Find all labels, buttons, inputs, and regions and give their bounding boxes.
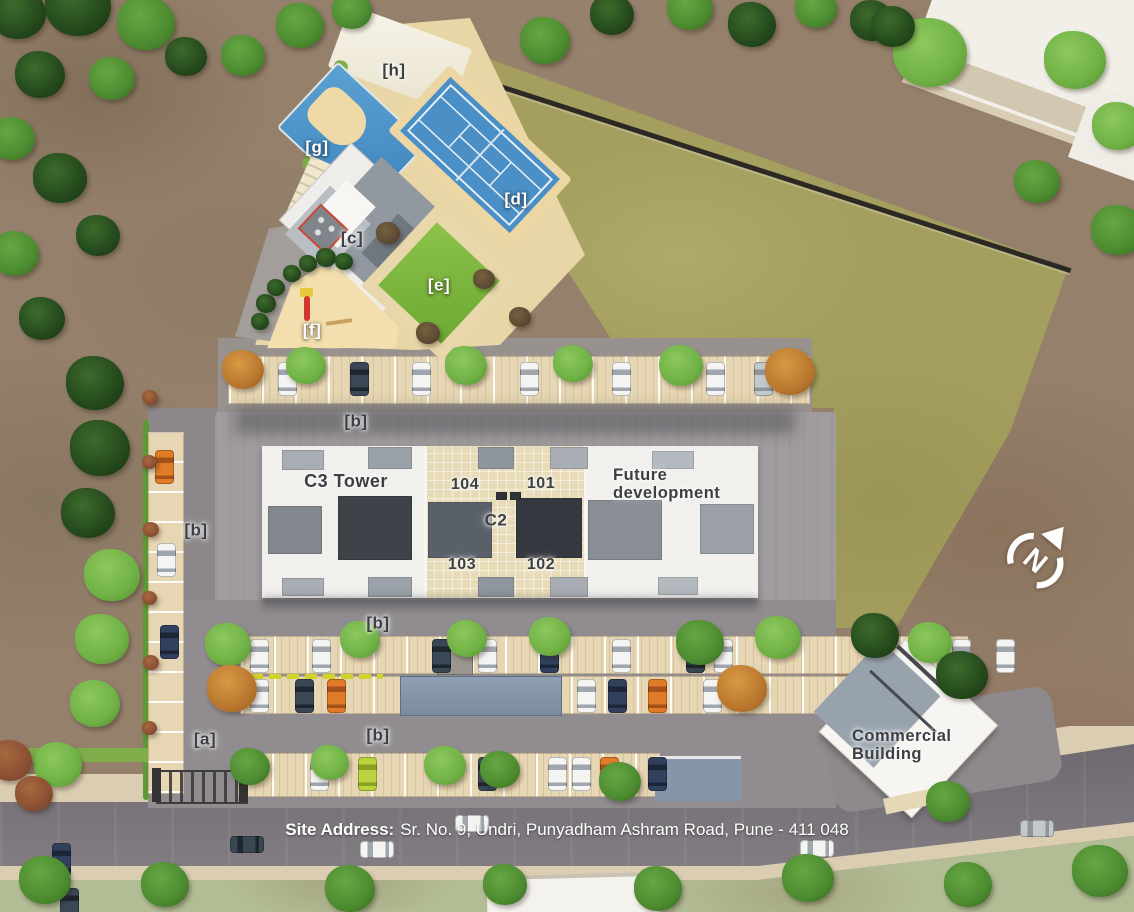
tree: [76, 215, 120, 256]
tree: [659, 345, 703, 386]
tree: [143, 655, 159, 670]
rooftop-block: [368, 577, 412, 597]
tree: [165, 37, 207, 76]
tree: [473, 269, 495, 289]
car: [360, 841, 394, 858]
marker-d: [d]: [504, 191, 527, 208]
tree: [142, 390, 158, 405]
tree: [222, 350, 264, 389]
unit-101-label: 101: [527, 476, 555, 492]
tree: [230, 748, 270, 785]
car: [327, 679, 346, 713]
marker-b-south: [b]: [366, 727, 389, 744]
tree: [1092, 102, 1134, 150]
parking-row-left: [148, 432, 184, 794]
tree: [19, 297, 65, 340]
car: [612, 639, 631, 673]
tree: [728, 2, 776, 47]
tree: [782, 854, 834, 902]
rooftop-block: [510, 492, 521, 500]
tree: [61, 488, 115, 538]
tree: [205, 623, 251, 666]
tree: [142, 455, 157, 469]
rooftop-block: [658, 577, 698, 595]
car: [572, 757, 591, 791]
address-banner-text: Sr. No. 9, Undri, Punyadham Ashram Road,…: [400, 820, 849, 839]
car: [155, 450, 174, 484]
address-banner: Site Address:Sr. No. 9, Undri, Punyadham…: [0, 820, 1134, 840]
tree: [15, 51, 65, 98]
tree: [299, 255, 317, 272]
tree: [335, 253, 353, 270]
tree: [480, 751, 520, 788]
tree: [256, 294, 276, 313]
play-slide: [304, 296, 310, 321]
rooftop-block: [516, 498, 582, 558]
tree: [267, 279, 285, 296]
tree: [0, 231, 39, 276]
tree: [316, 248, 336, 267]
marker-e: [e]: [428, 277, 450, 294]
car: [548, 757, 567, 791]
address-banner-label: Site Address:: [285, 820, 394, 839]
tree: [283, 265, 301, 282]
tree: [142, 721, 157, 735]
tree: [15, 776, 53, 811]
tree: [376, 222, 400, 244]
rooftop-block: [496, 492, 507, 500]
tree: [89, 57, 135, 100]
tree: [207, 665, 257, 712]
marker-b-middle: [b]: [366, 615, 389, 632]
tree: [755, 616, 801, 659]
service-building: [655, 756, 741, 801]
tree: [143, 522, 159, 537]
car: [157, 543, 176, 577]
car: [706, 362, 725, 396]
building-shadow: [262, 597, 758, 609]
tree: [765, 348, 815, 395]
marker-g: [g]: [305, 139, 328, 156]
unit-103-label: 103: [448, 557, 476, 573]
car: [520, 362, 539, 396]
rooftop-block: [338, 496, 412, 560]
tree: [483, 864, 527, 905]
tree: [117, 0, 175, 50]
gate-pillar: [152, 768, 161, 802]
rooftop-block: [550, 577, 588, 597]
tree: [142, 591, 157, 605]
tree: [45, 0, 111, 36]
future-development-label: Future development: [613, 466, 743, 502]
rooftop-block: [282, 578, 324, 596]
car: [608, 679, 627, 713]
tree: [221, 35, 265, 76]
tree: [19, 856, 71, 904]
marker-c: [c]: [341, 230, 363, 247]
rooftop-block: [700, 504, 754, 554]
rooftop-block: [368, 447, 412, 469]
wing-gap: [424, 446, 427, 598]
tree: [599, 762, 641, 801]
commercial-building-label: Commercial Building: [852, 727, 970, 763]
rooftop-block: [550, 447, 588, 469]
tree: [75, 614, 129, 664]
car: [577, 679, 596, 713]
marker-a: [a]: [194, 731, 216, 748]
tree: [33, 153, 87, 203]
car: [295, 679, 314, 713]
tree: [1014, 160, 1060, 203]
car: [250, 639, 269, 673]
tree: [416, 322, 440, 344]
c3-tower-label: C3 Tower: [304, 472, 388, 490]
tree: [276, 3, 324, 48]
tree: [926, 781, 970, 822]
parking-canopy: [400, 676, 562, 716]
marker-f: [f]: [303, 322, 321, 339]
tree: [667, 0, 713, 30]
tree: [325, 865, 375, 912]
tree: [936, 651, 988, 699]
tree: [944, 862, 992, 907]
car: [996, 639, 1015, 673]
rooftop-block: [588, 500, 662, 560]
marker-h: [h]: [382, 62, 405, 79]
car: [648, 679, 667, 713]
car: [312, 639, 331, 673]
car: [350, 362, 369, 396]
tree: [509, 307, 531, 327]
north-arrow: [1041, 519, 1073, 551]
tree: [70, 680, 120, 727]
tree: [311, 745, 349, 780]
tree: [251, 313, 269, 330]
tree: [66, 356, 124, 410]
tree: [634, 866, 682, 911]
tree: [286, 347, 326, 384]
car: [412, 362, 431, 396]
marker-b-left: [b]: [184, 522, 207, 539]
tree: [445, 346, 487, 385]
tree: [0, 117, 35, 160]
tree: [1044, 31, 1106, 89]
tree: [851, 613, 899, 658]
car: [612, 362, 631, 396]
marker-b-top: [b]: [344, 413, 367, 430]
tree: [871, 6, 915, 47]
tree: [1072, 845, 1128, 897]
tree: [84, 549, 140, 601]
unit-102-label: 102: [527, 557, 555, 573]
rooftop-block: [478, 447, 514, 469]
tree: [676, 620, 724, 665]
car: [358, 757, 377, 791]
tree: [520, 17, 570, 64]
tree: [0, 0, 46, 39]
tree: [590, 0, 634, 35]
tree: [447, 620, 487, 657]
compass-letter: N: [1017, 542, 1053, 580]
rooftop-block: [282, 450, 324, 470]
rooftop-block: [428, 502, 492, 558]
rooftop-block: [478, 577, 514, 597]
unit-104-label: 104: [451, 477, 479, 493]
tree: [795, 0, 837, 28]
rooftop-block: [268, 506, 322, 554]
tree: [141, 862, 189, 907]
car: [648, 757, 667, 791]
tree: [424, 746, 466, 785]
site-plan: N [h] [g] [c] [d] [e] [f] [b] [b] [b] [b…: [0, 0, 1134, 912]
building-shadow: [235, 408, 795, 434]
tree: [717, 665, 767, 712]
tree: [529, 617, 571, 656]
tree: [1091, 205, 1134, 255]
tree: [553, 345, 593, 382]
compass-north-icon: N: [990, 505, 1089, 606]
car: [160, 625, 179, 659]
tree: [70, 420, 130, 476]
c2-label: C2: [485, 512, 508, 529]
